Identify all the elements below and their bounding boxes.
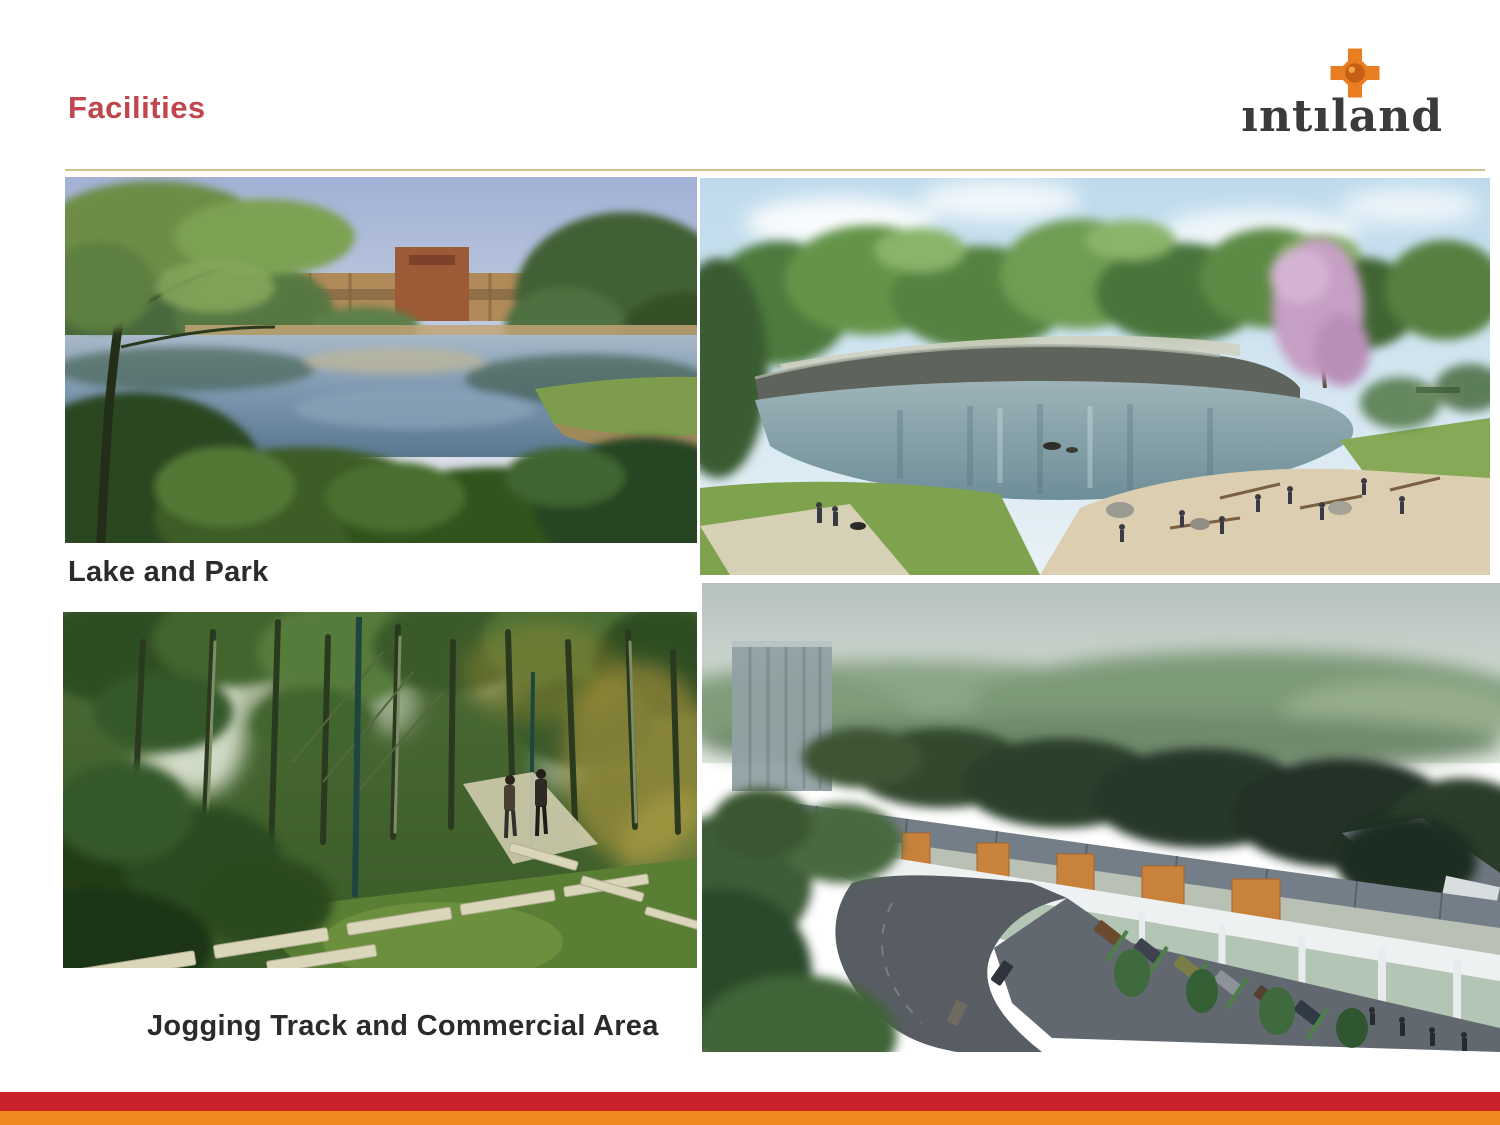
footer-bar-orange bbox=[0, 1111, 1500, 1125]
slide: Facilities ıntıland bbox=[0, 0, 1500, 1125]
lake-park-photo bbox=[65, 177, 697, 543]
caption-lake-and-park: Lake and Park bbox=[68, 556, 269, 589]
lake-render-svg bbox=[700, 178, 1490, 575]
title-divider-line bbox=[65, 169, 1485, 171]
commercial-area-svg bbox=[702, 583, 1500, 1052]
commercial-area-render bbox=[702, 583, 1500, 1052]
jogging-track-svg bbox=[63, 612, 697, 968]
lake-render bbox=[700, 178, 1490, 575]
lake-park-photo-svg bbox=[65, 177, 697, 543]
page-title: Facilities bbox=[68, 90, 206, 126]
footer-bar-red bbox=[0, 1092, 1500, 1111]
caption-jogging-track: Jogging Track and Commercial Area bbox=[147, 1010, 659, 1043]
logo-wordmark: ıntıland bbox=[1241, 95, 1443, 139]
jogging-track-photo bbox=[63, 612, 697, 968]
intiland-logo: ıntıland bbox=[1223, 45, 1443, 150]
